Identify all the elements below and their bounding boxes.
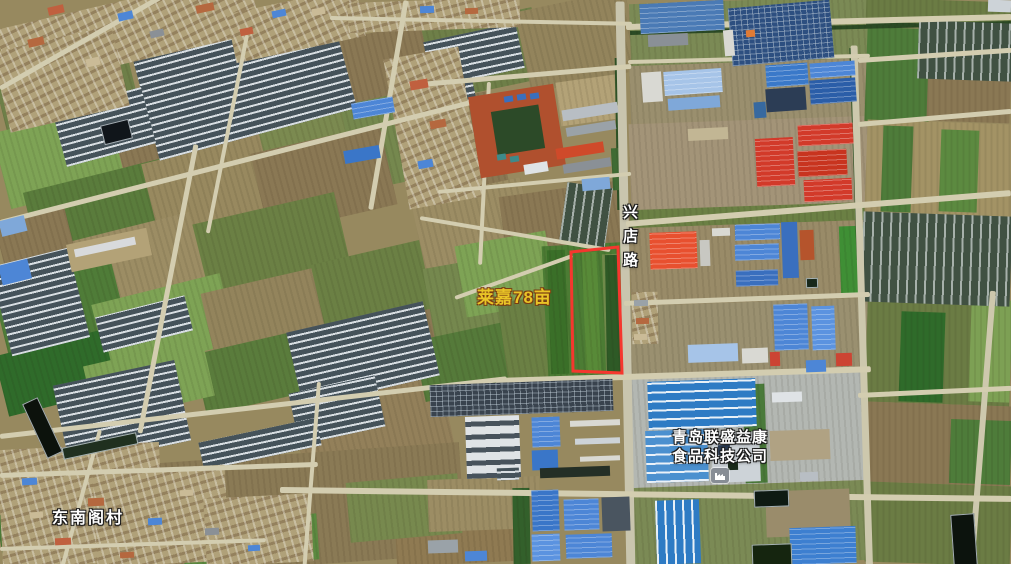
building — [797, 123, 853, 147]
building — [120, 552, 134, 559]
village-block — [203, 493, 313, 564]
greenhouse — [559, 182, 613, 248]
building — [555, 141, 604, 159]
building — [647, 378, 757, 430]
building — [22, 478, 37, 486]
building — [765, 63, 808, 88]
building — [639, 0, 724, 34]
company-label-line2: 食品科技公司 — [672, 447, 768, 466]
building — [770, 352, 780, 366]
building — [532, 534, 561, 562]
building — [248, 545, 260, 552]
company-label-line1: 青岛联盛益康 — [672, 428, 768, 447]
building — [491, 105, 545, 156]
building — [465, 551, 487, 562]
building — [700, 240, 711, 266]
building — [575, 437, 620, 445]
building — [988, 0, 1011, 12]
building — [148, 518, 162, 526]
building — [30, 512, 43, 519]
field-patch — [512, 488, 530, 564]
building — [420, 6, 434, 13]
building — [648, 33, 689, 47]
building — [799, 230, 814, 260]
parcel-area-label: 莱嘉78亩 — [477, 283, 552, 308]
water-body — [950, 513, 978, 564]
greenhouse — [860, 211, 1011, 306]
building — [753, 102, 766, 119]
building — [636, 318, 649, 324]
building — [428, 539, 458, 553]
building — [563, 498, 599, 530]
building — [531, 417, 560, 448]
building — [429, 379, 613, 417]
building — [735, 223, 781, 241]
building — [806, 360, 826, 373]
building — [566, 533, 613, 559]
building — [582, 177, 611, 191]
building — [809, 77, 857, 104]
building — [789, 526, 856, 564]
building — [180, 490, 193, 497]
building — [465, 8, 478, 14]
building — [810, 60, 856, 78]
building — [570, 419, 620, 427]
road-label-xingdianlu: 兴店路 — [619, 204, 640, 276]
building — [769, 429, 830, 461]
building — [580, 455, 620, 461]
building — [523, 161, 548, 175]
building — [781, 222, 799, 279]
building — [641, 71, 663, 102]
building — [772, 391, 802, 402]
building — [55, 538, 71, 546]
building — [688, 127, 729, 141]
village-label: 东南阁村 — [52, 504, 124, 528]
building — [601, 497, 630, 532]
building — [755, 137, 795, 187]
building — [688, 343, 739, 363]
building — [531, 490, 559, 532]
water-body — [806, 278, 818, 288]
building — [205, 528, 219, 536]
building — [563, 157, 612, 173]
building — [797, 149, 847, 178]
company-label: 青岛联盛益康 食品科技公司 — [672, 428, 768, 483]
building — [736, 269, 779, 286]
building — [746, 30, 756, 38]
building — [634, 334, 647, 340]
water-body — [754, 489, 790, 507]
building — [634, 300, 648, 306]
building — [836, 353, 852, 367]
factory-icon-glyph — [714, 471, 726, 481]
building — [735, 243, 780, 261]
factory-icon — [711, 468, 729, 483]
building — [649, 231, 697, 270]
building — [540, 466, 610, 478]
greenhouse — [497, 468, 519, 481]
water-body — [752, 543, 793, 564]
building — [800, 472, 818, 482]
building — [712, 228, 730, 237]
building — [811, 306, 836, 351]
building — [773, 303, 809, 350]
building — [723, 30, 735, 57]
building — [803, 178, 852, 202]
building — [655, 499, 701, 564]
satellite-map: 兴店路 莱嘉78亩 青岛联盛益康 食品科技公司 东南阁村 — [0, 0, 1011, 564]
building — [663, 68, 723, 96]
building — [742, 348, 769, 364]
building — [765, 87, 807, 113]
building — [728, 0, 835, 66]
